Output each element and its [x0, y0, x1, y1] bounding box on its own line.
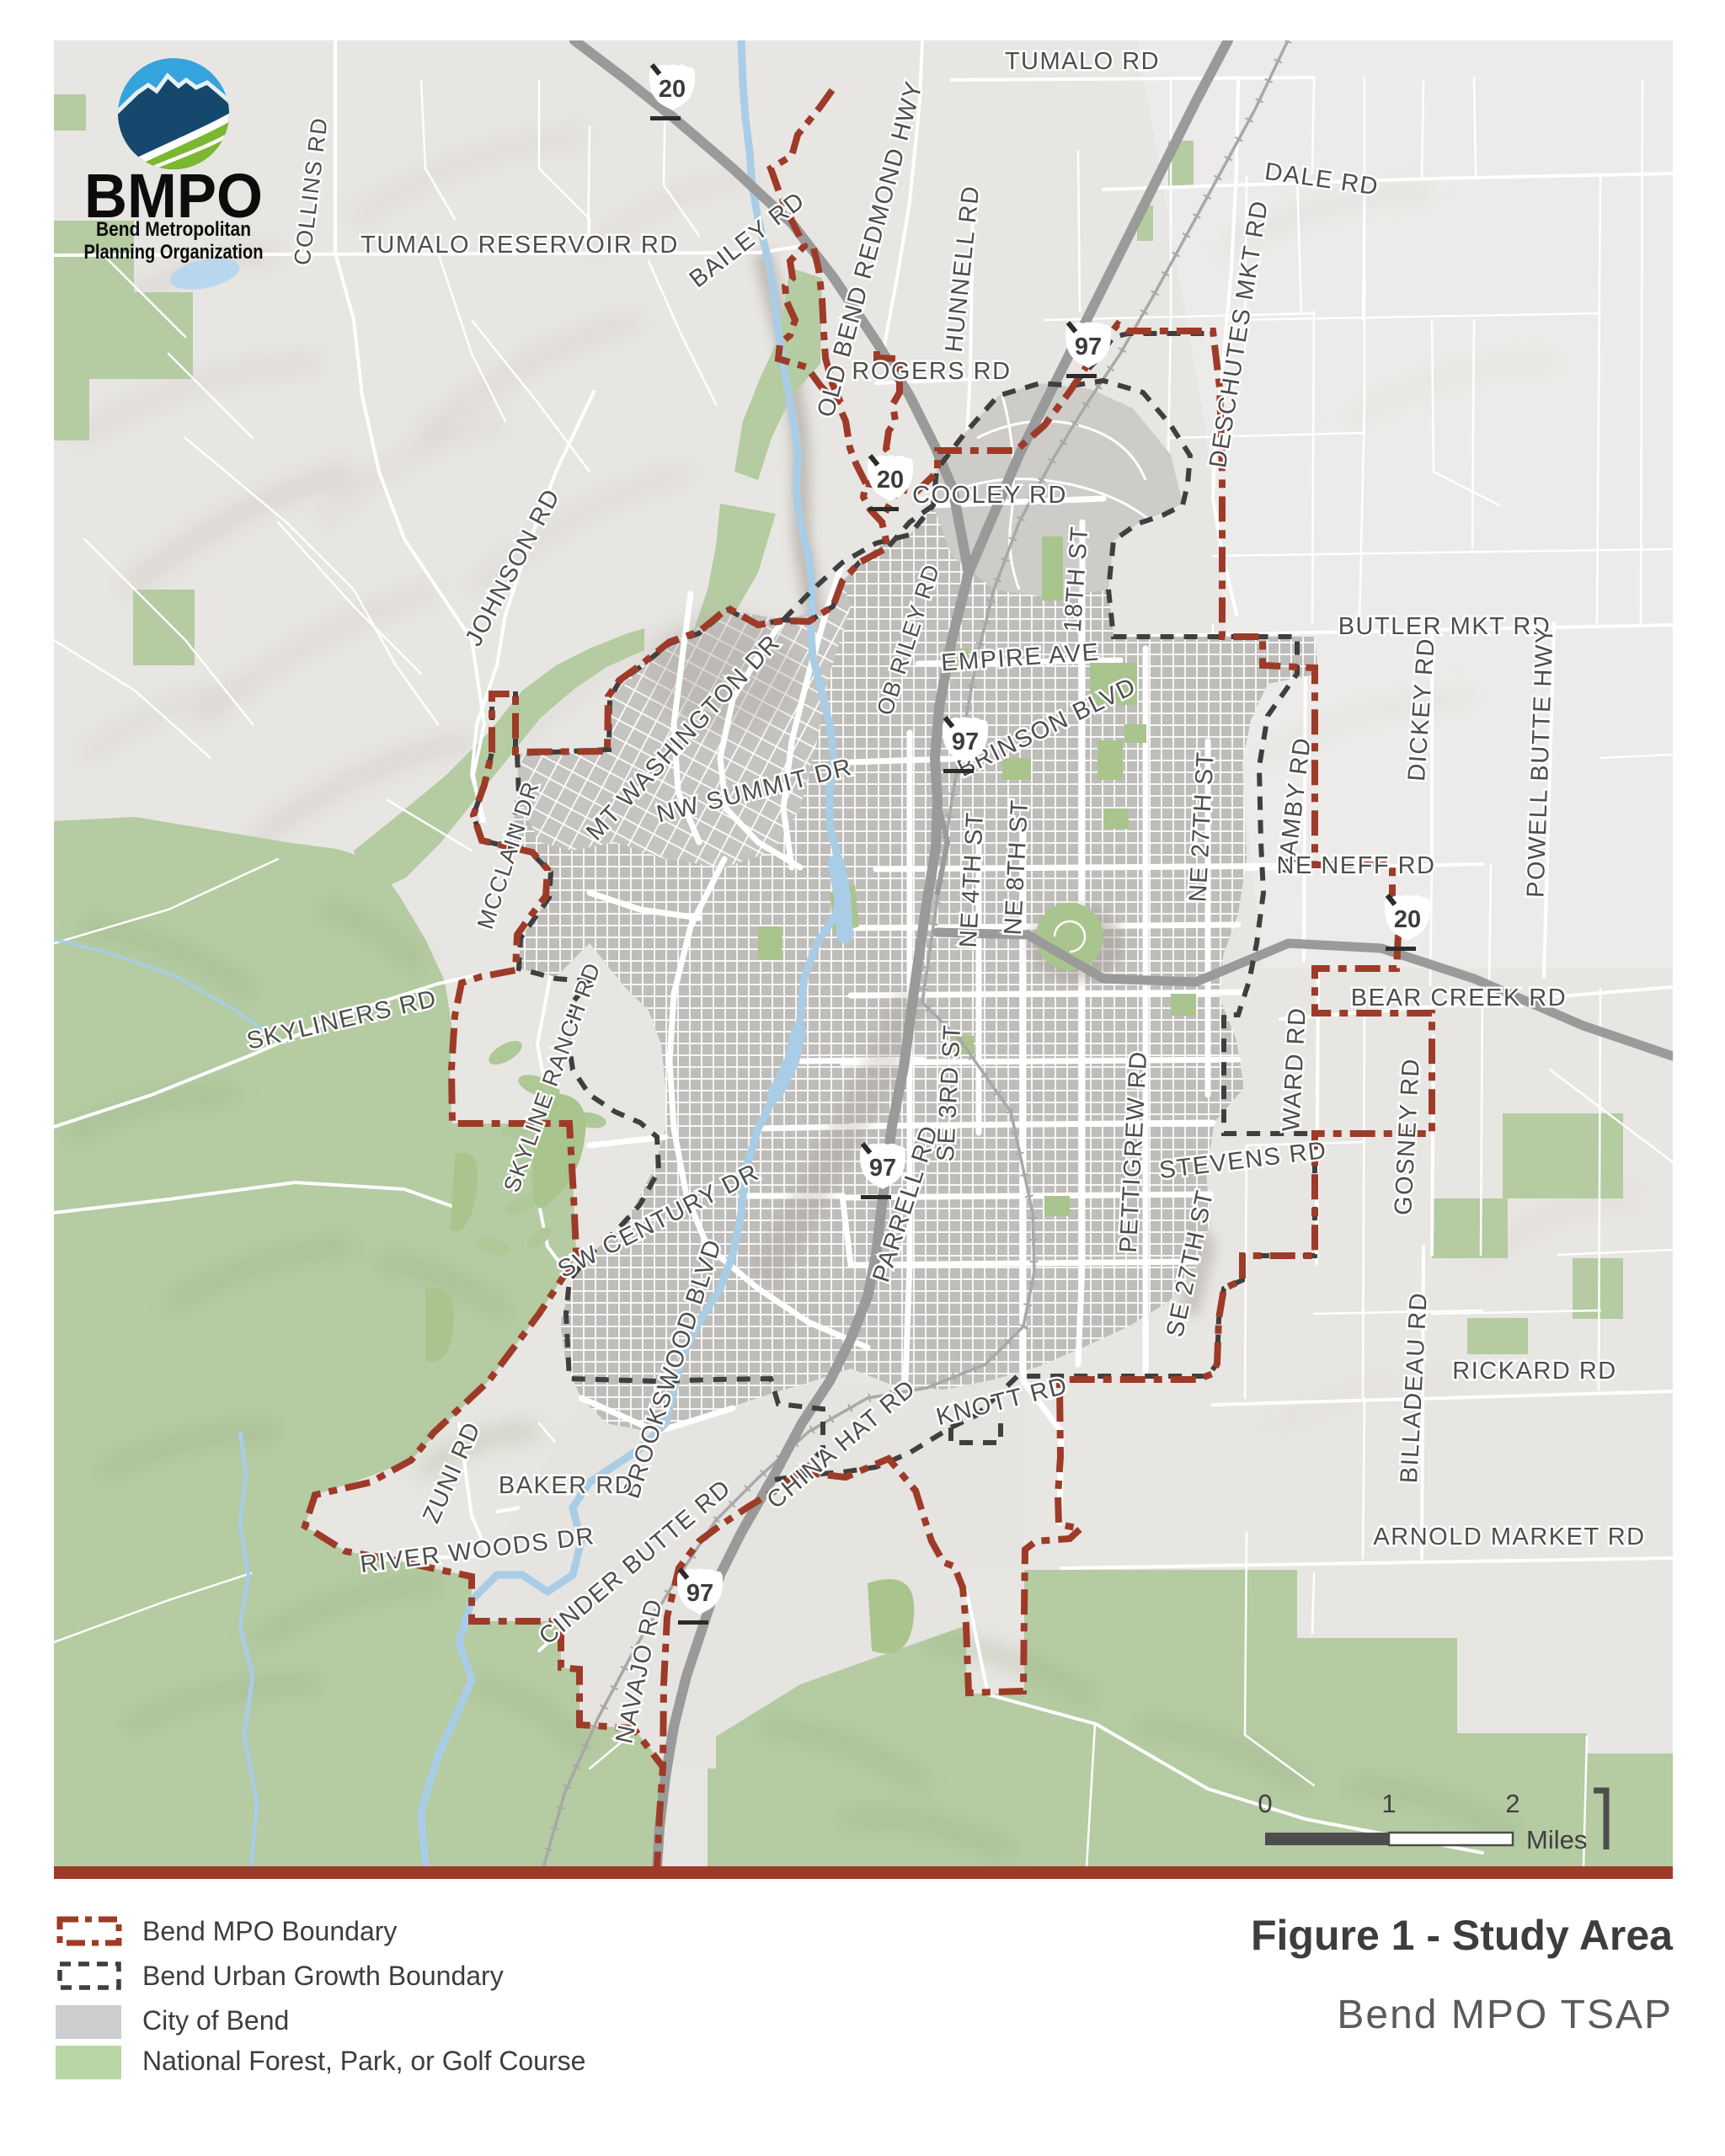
svg-text:National Forest, Park, or Golf: National Forest, Park, or Golf Course — [142, 2046, 585, 2076]
svg-text:Figure 1 - Study Area: Figure 1 - Study Area — [1251, 1912, 1674, 1959]
svg-text:97: 97 — [869, 1155, 896, 1182]
svg-text:BUTLER MKT RD: BUTLER MKT RD — [1338, 613, 1551, 640]
svg-text:Bend MPO Boundary: Bend MPO Boundary — [142, 1916, 397, 1946]
svg-text:20: 20 — [659, 76, 686, 103]
svg-text:Planning Organization: Planning Organization — [84, 241, 264, 264]
svg-text:TUMALO RD: TUMALO RD — [1005, 48, 1160, 75]
svg-text:BEAR CREEK RD: BEAR CREEK RD — [1351, 985, 1567, 1011]
svg-text:Miles: Miles — [1526, 1825, 1587, 1854]
svg-text:20: 20 — [1394, 906, 1421, 933]
svg-text:97: 97 — [686, 1580, 713, 1607]
svg-text:ROGERS RD: ROGERS RD — [852, 358, 1011, 385]
svg-text:NE NEFF RD: NE NEFF RD — [1277, 852, 1436, 879]
svg-text:97: 97 — [952, 728, 979, 755]
svg-text:RICKARD RD: RICKARD RD — [1452, 1358, 1616, 1385]
svg-text:Bend Metropolitan: Bend Metropolitan — [96, 218, 251, 241]
svg-text:ARNOLD MARKET RD: ARNOLD MARKET RD — [1373, 1524, 1645, 1550]
svg-text:20: 20 — [877, 467, 904, 494]
svg-text:97: 97 — [1075, 334, 1102, 360]
svg-text:0: 0 — [1258, 1789, 1272, 1818]
svg-text:2: 2 — [1505, 1789, 1519, 1818]
svg-text:Bend Urban Growth Boundary: Bend Urban Growth Boundary — [142, 1961, 504, 1991]
svg-text:1: 1 — [1381, 1789, 1396, 1818]
svg-text:Bend MPO TSAP: Bend MPO TSAP — [1337, 1993, 1673, 2037]
svg-text:TUMALO RESERVOIR RD: TUMALO RESERVOIR RD — [360, 232, 679, 259]
svg-text:City of Bend: City of Bend — [142, 2005, 289, 2036]
svg-text:COOLEY RD: COOLEY RD — [912, 482, 1067, 509]
svg-text:BAKER RD: BAKER RD — [499, 1472, 633, 1499]
